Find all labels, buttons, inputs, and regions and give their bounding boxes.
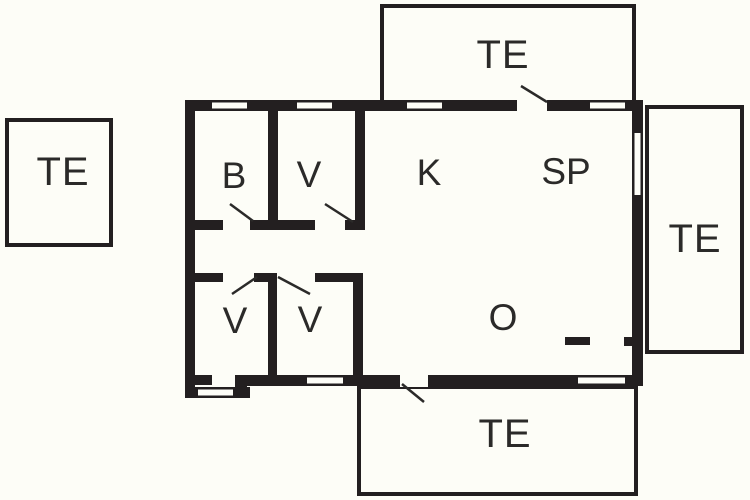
fireplace-mark (565, 337, 590, 345)
room-v-bottom-right-label: V (298, 299, 323, 340)
door-gap-room-b (223, 219, 250, 231)
window-bumpout (198, 390, 233, 396)
wall-v-k-divider (355, 111, 365, 230)
interior-walls (195, 111, 365, 385)
exterior-walls (185, 100, 643, 398)
labels: TE TE TE TE B V K SP O V V (36, 33, 721, 456)
terrace-outlines (7, 6, 742, 494)
window-north-2 (297, 103, 332, 109)
wall-bumpout-corner (235, 375, 247, 398)
door-openings (212, 99, 547, 387)
wall-v-livingroom-divider (353, 273, 363, 385)
terrace-bottom-label: TE (478, 412, 531, 456)
window-north-1 (212, 103, 247, 109)
window-south-1 (307, 378, 343, 384)
wall-v-v-divider (268, 273, 277, 385)
room-o-label: O (489, 297, 518, 338)
door-gap-top-terrace (517, 99, 547, 112)
terrace-right-label: TE (668, 217, 721, 261)
room-sp-label: SP (541, 151, 590, 192)
door-gap-room-v-bottom-right (277, 272, 315, 283)
floor-plan-canvas: TE TE TE TE B V K SP O V V (0, 0, 750, 500)
terrace-top-label: TE (476, 33, 529, 77)
window-north-3 (407, 103, 442, 109)
windows (198, 103, 641, 396)
wall-b-v-divider (268, 111, 278, 230)
window-north-4 (590, 103, 625, 109)
room-v-top-label: V (297, 154, 322, 195)
terrace-left-label: TE (36, 150, 89, 194)
window-east (635, 133, 641, 195)
wall-bumpout-stub (185, 375, 212, 385)
room-k-label: K (417, 152, 442, 193)
room-v-bottom-left-label: V (223, 300, 248, 341)
door-gap-room-v-top (315, 219, 345, 231)
fireplace-symbol (565, 337, 635, 346)
fireplace-wall-tick (624, 337, 635, 346)
door-gap-bumpout (212, 374, 235, 386)
window-south-2 (578, 378, 625, 384)
room-b-label: B (222, 155, 247, 196)
floor-plan-drawing: TE TE TE TE B V K SP O V V (0, 0, 750, 500)
wall-west (185, 100, 195, 398)
door-swing-room-b (230, 204, 253, 221)
